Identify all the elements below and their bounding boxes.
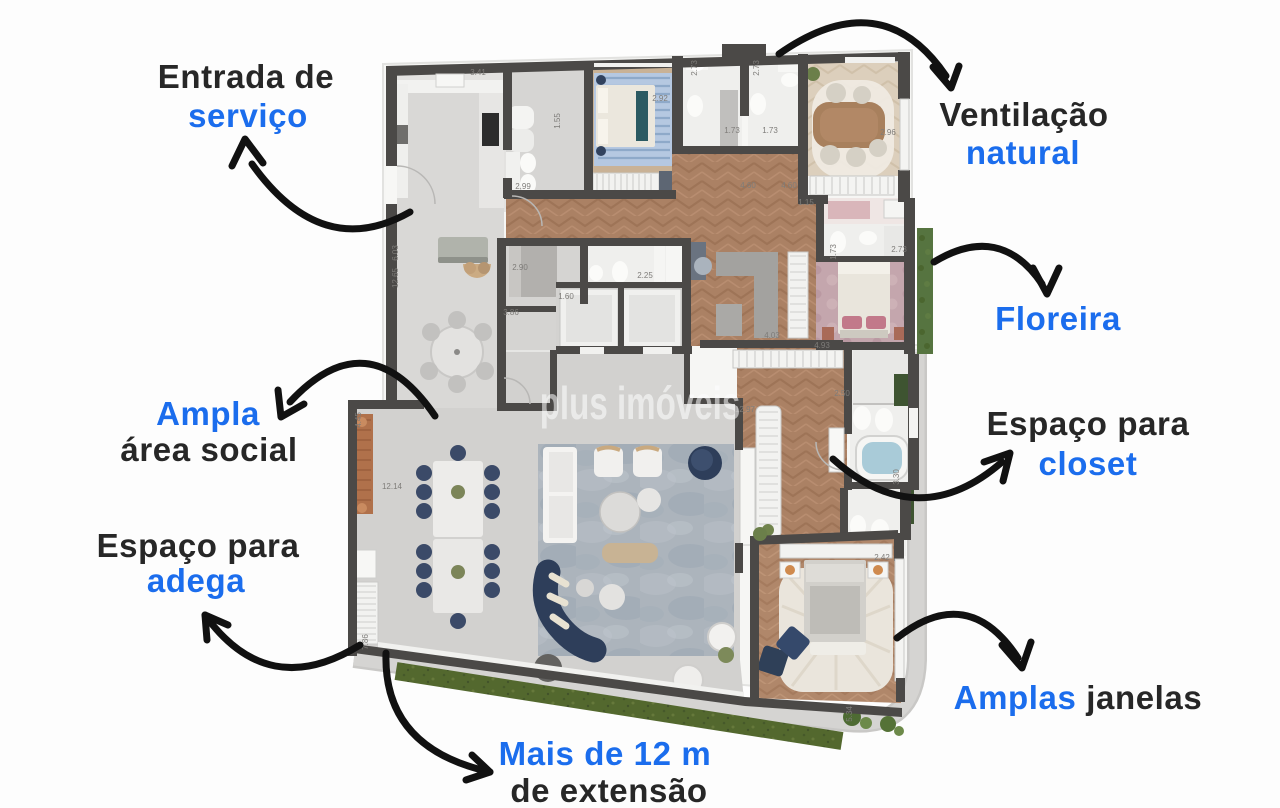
svg-text:closet: closet bbox=[1039, 445, 1138, 482]
svg-text:1.73: 1.73 bbox=[829, 244, 838, 260]
svg-text:2.73: 2.73 bbox=[752, 60, 761, 76]
svg-text:3.30: 3.30 bbox=[892, 469, 901, 485]
svg-text:área social: área social bbox=[120, 431, 297, 468]
svg-text:2.99: 2.99 bbox=[515, 182, 531, 191]
svg-text:12.65: 12.65 bbox=[391, 267, 400, 288]
svg-text:4.45: 4.45 bbox=[354, 412, 363, 428]
svg-text:1.73: 1.73 bbox=[724, 126, 740, 135]
svg-text:4.03: 4.03 bbox=[764, 331, 780, 340]
svg-text:serviço: serviço bbox=[188, 97, 308, 134]
svg-text:2.42: 2.42 bbox=[874, 553, 890, 562]
svg-text:Floreira: Floreira bbox=[995, 300, 1121, 337]
svg-text:4.93: 4.93 bbox=[814, 341, 830, 350]
svg-text:1.60: 1.60 bbox=[558, 292, 574, 301]
svg-text:3.86: 3.86 bbox=[503, 308, 519, 317]
svg-text:Entrada de: Entrada de bbox=[158, 58, 335, 95]
svg-text:1.73: 1.73 bbox=[762, 126, 778, 135]
svg-text:2.92: 2.92 bbox=[652, 94, 668, 103]
svg-text:4.60: 4.60 bbox=[740, 181, 756, 190]
svg-text:2.73: 2.73 bbox=[690, 60, 699, 76]
svg-text:Amplas janelas: Amplas janelas bbox=[954, 679, 1203, 716]
svg-text:Mais de 12 m: Mais de 12 m bbox=[499, 735, 712, 772]
svg-text:2.73: 2.73 bbox=[891, 245, 907, 254]
svg-text:4.60: 4.60 bbox=[781, 181, 797, 190]
svg-text:12.14: 12.14 bbox=[382, 482, 403, 491]
svg-text:de extensão: de extensão bbox=[510, 772, 707, 808]
svg-text:1.55: 1.55 bbox=[553, 113, 562, 129]
svg-text:natural: natural bbox=[966, 134, 1080, 171]
svg-text:adega: adega bbox=[147, 562, 245, 599]
svg-text:Ampla: Ampla bbox=[156, 395, 260, 432]
svg-text:Espaço para: Espaço para bbox=[97, 527, 300, 564]
svg-text:Espaço para: Espaço para bbox=[987, 405, 1190, 442]
svg-text:5.34: 5.34 bbox=[845, 706, 854, 722]
svg-text:1.15: 1.15 bbox=[798, 198, 814, 207]
svg-text:2.90: 2.90 bbox=[512, 263, 528, 272]
svg-text:2.96: 2.96 bbox=[880, 128, 896, 137]
svg-text:2.25: 2.25 bbox=[637, 271, 653, 280]
svg-text:Ventilação: Ventilação bbox=[939, 96, 1108, 133]
svg-text:2.50: 2.50 bbox=[834, 389, 850, 398]
svg-text:6.03: 6.03 bbox=[391, 245, 400, 261]
svg-text:3.41: 3.41 bbox=[470, 68, 486, 77]
svg-text:plus imóveis: plus imóveis bbox=[540, 379, 741, 429]
